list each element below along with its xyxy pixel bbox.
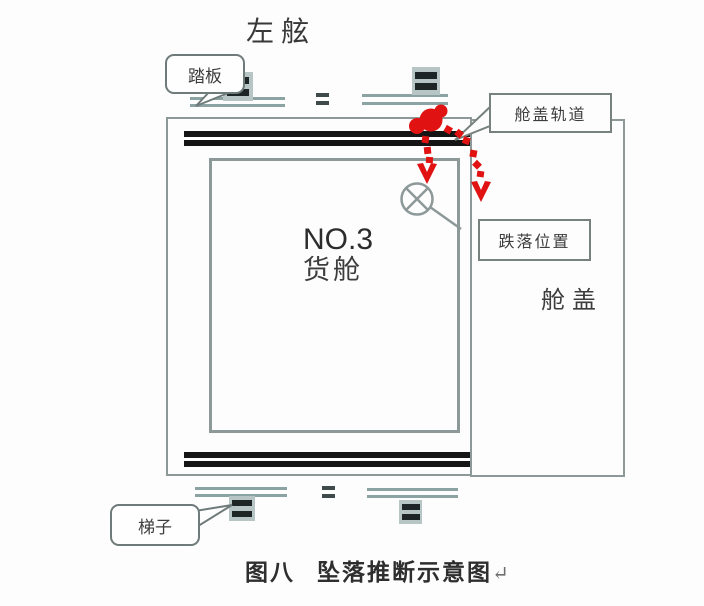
figure-caption-title: 坠落推断示意图 [317, 560, 492, 585]
cargo-hold-number: NO.3 [303, 224, 373, 255]
return-mark-icon: ↵ [492, 563, 511, 585]
equals-mark-icon [322, 494, 335, 498]
hatch-rail-label: 舱盖轨道 [514, 101, 586, 125]
ladder-callout-label: 梯子 [138, 513, 172, 538]
ladder-icon [412, 67, 440, 95]
port-side-label: 左舷 [246, 10, 356, 50]
cargo-hold-label: NO.3 货舱 [303, 224, 373, 286]
coaming-bar [184, 461, 470, 467]
coaming-bar [184, 452, 470, 458]
fall-position-label: 跌落位置 [498, 228, 570, 252]
equals-mark-icon [322, 486, 335, 490]
cargo-hold-outline [209, 158, 460, 433]
ladder-rung [232, 500, 252, 506]
deck-line [190, 104, 285, 107]
ladder-icon [229, 496, 255, 521]
ladder-callout-tail [195, 505, 232, 528]
figure-caption: 图八坠落推断示意图↵ [245, 553, 511, 587]
ladder-rung [415, 72, 437, 79]
ladder-rung [232, 511, 252, 517]
figure-caption-number: 图八 [245, 560, 295, 585]
equals-mark-icon [316, 101, 329, 105]
hatch-cover-label: 舱盖 [512, 280, 632, 315]
pedal-callout: 踏板 [165, 54, 245, 94]
deck-line [362, 102, 448, 105]
hatch-rail-callout: 舱盖轨道 [489, 93, 612, 133]
ladder-rung [402, 514, 420, 520]
ladder-callout: 梯子 [110, 504, 200, 546]
ladder-rung [415, 83, 437, 90]
ladder-icon [399, 500, 422, 524]
coaming-bar [184, 131, 470, 137]
coaming-bar [184, 140, 470, 146]
fall-position-callout: 跌落位置 [478, 219, 591, 261]
cargo-hold-text: 货舱 [303, 255, 373, 286]
fall-inference-diagram: 左舷 NO.3 货舱 舱盖 [0, 0, 704, 606]
deck-line [195, 487, 287, 490]
deck-line [367, 495, 458, 498]
equals-mark-icon [316, 93, 329, 97]
pedal-callout-label: 踏板 [188, 62, 222, 87]
ladder-rung [402, 504, 420, 510]
deck-line [367, 488, 458, 491]
